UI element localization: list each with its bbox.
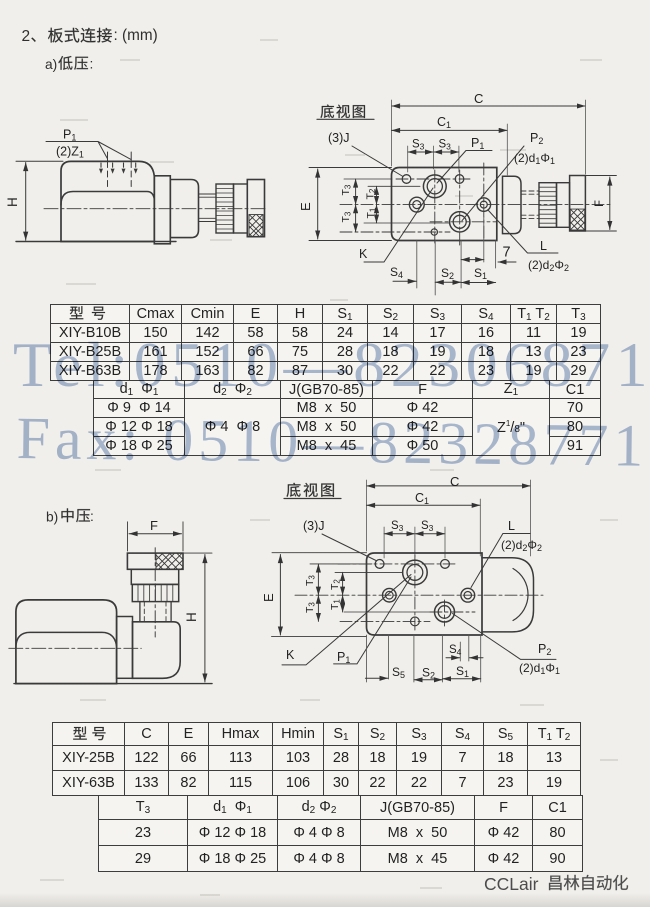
svg-text:b): b) xyxy=(46,510,58,525)
svg-text::: : xyxy=(90,509,94,524)
svg-text:a): a) xyxy=(45,57,57,72)
svg-text:: (mm): : (mm) xyxy=(114,27,158,44)
svg-text:CCLair: CCLair xyxy=(484,874,539,894)
svg-text:2: 2 xyxy=(22,28,31,45)
svg-text::: : xyxy=(90,57,94,72)
